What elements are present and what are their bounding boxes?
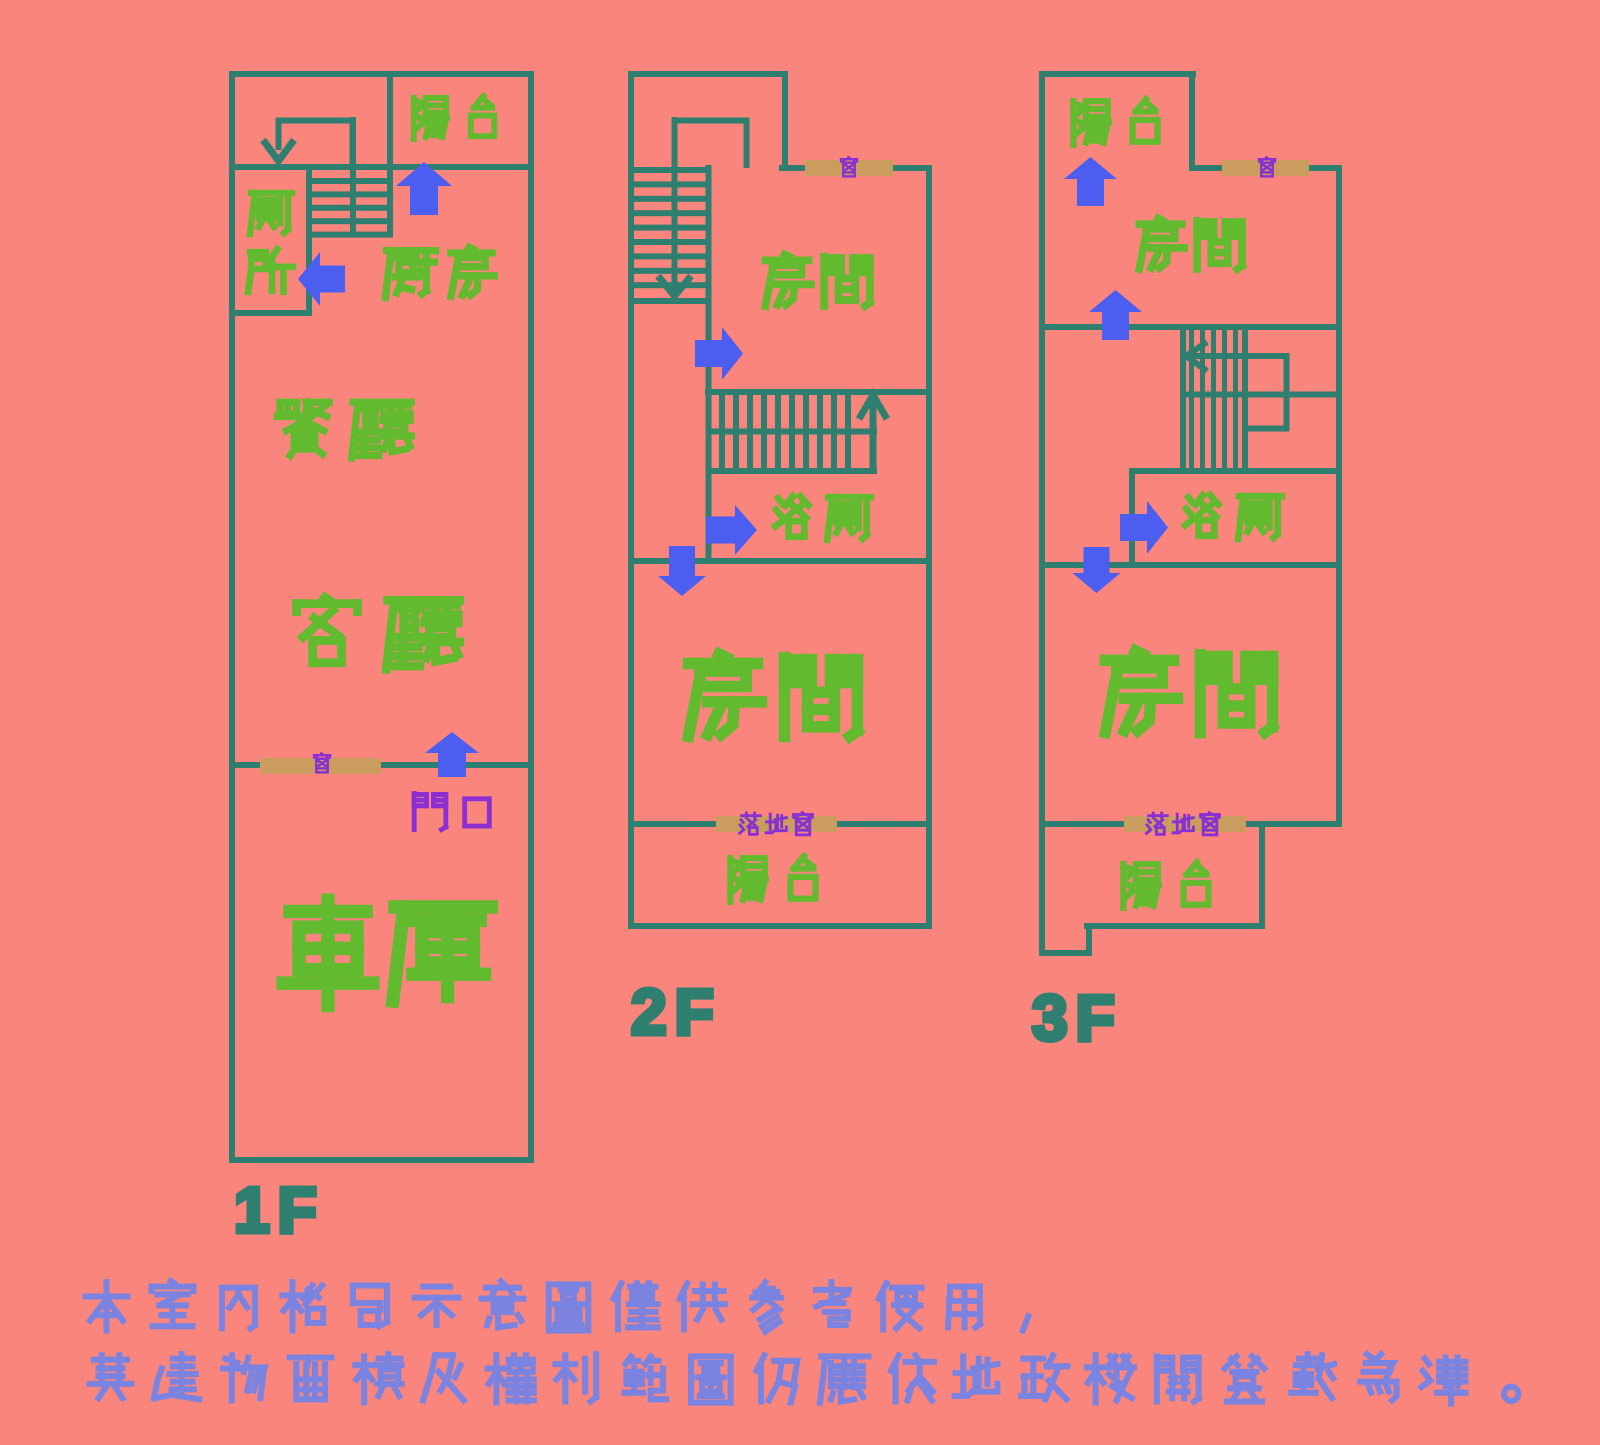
svg-text:3F: 3F (1032, 982, 1123, 1054)
svg-text:1F: 1F (234, 1174, 325, 1246)
svg-text:2F: 2F (631, 976, 722, 1048)
